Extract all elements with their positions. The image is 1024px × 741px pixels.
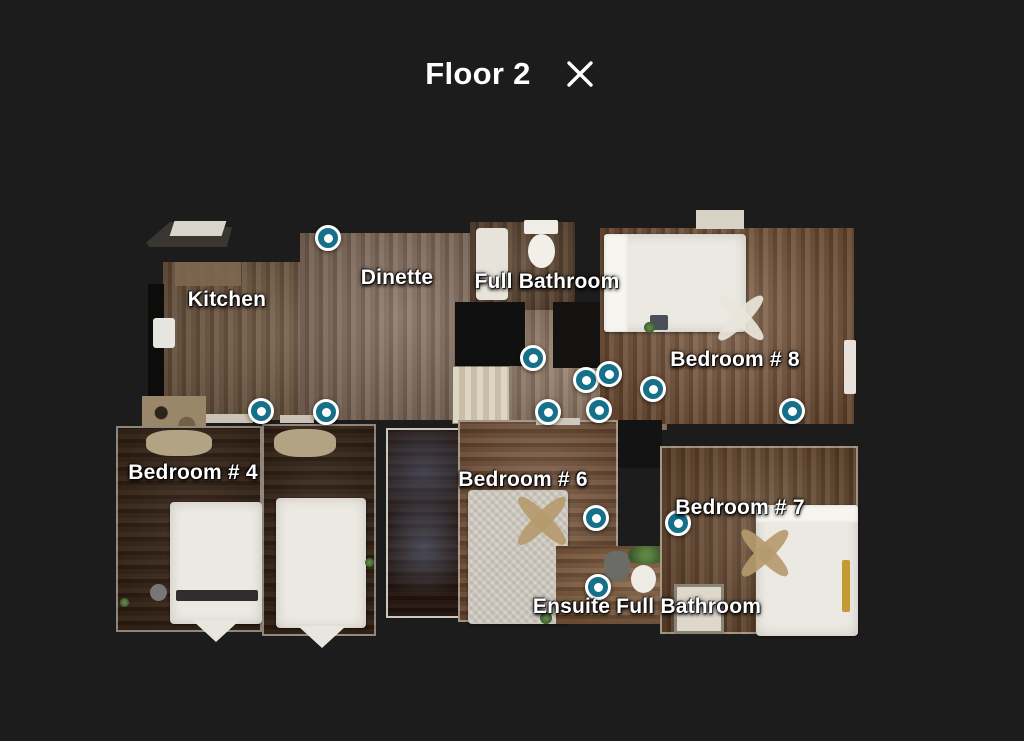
staircase — [452, 366, 510, 424]
bed-pillows — [604, 234, 628, 332]
blanket-drape — [298, 626, 346, 648]
floorplan-overlay: Floor 2 — [0, 0, 1024, 741]
room-bedroom-7 — [660, 446, 858, 634]
waypoint-marker-13[interactable] — [585, 574, 611, 600]
door-threshold — [205, 414, 253, 423]
waypoint-marker-9[interactable] — [586, 397, 612, 423]
plant — [540, 612, 552, 624]
waypoint-marker-8[interactable] — [535, 399, 561, 425]
close-button[interactable] — [561, 55, 599, 93]
bedding-clutter — [146, 430, 212, 456]
kitchen-floor-patch — [175, 262, 241, 286]
bathroom-vanity — [476, 228, 508, 300]
room-bedroom-4 — [116, 426, 262, 632]
waypoint-marker-3[interactable] — [313, 399, 339, 425]
waypoint-marker-2[interactable] — [248, 398, 274, 424]
closet-nook — [696, 210, 744, 229]
room-bedroom-5 — [262, 424, 376, 636]
waypoint-marker-4[interactable] — [520, 345, 546, 371]
hamper — [604, 551, 630, 581]
room-dark-hall — [386, 428, 462, 618]
waypoint-marker-1[interactable] — [315, 225, 341, 251]
stairwell-opening — [455, 302, 525, 366]
pouf — [150, 584, 167, 601]
ceiling-fan — [709, 286, 773, 350]
waypoint-marker-6[interactable] — [596, 361, 622, 387]
waypoint-marker-12[interactable] — [665, 510, 691, 536]
room-bedroom-8 — [600, 228, 854, 424]
kitchen-appliance — [153, 318, 175, 348]
blanket-drape — [192, 620, 240, 642]
closet — [674, 584, 724, 634]
ceiling-fan — [508, 487, 576, 555]
room-full-bathroom — [470, 222, 575, 312]
toilet-tank — [524, 220, 558, 234]
hall-closet — [553, 302, 601, 368]
door-threshold — [280, 415, 314, 423]
skylight — [170, 221, 227, 236]
pedestal-sink — [631, 565, 656, 593]
close-icon — [565, 59, 595, 89]
plant — [644, 322, 655, 333]
waypoint-marker-10[interactable] — [779, 398, 805, 424]
ceiling-fan — [732, 520, 798, 586]
plant — [365, 558, 374, 567]
bed — [276, 498, 366, 628]
bed — [170, 502, 262, 624]
bed-bench — [176, 590, 258, 601]
curtain — [842, 560, 850, 612]
floorplan-image[interactable]: KitchenDinetteFull BathroomBedroom # 8Be… — [0, 0, 1024, 741]
bedding-clutter — [274, 429, 336, 457]
toilet-bowl — [528, 234, 555, 268]
waypoint-marker-5[interactable] — [573, 367, 599, 393]
wall-gap — [618, 420, 662, 468]
window-sill — [844, 340, 856, 394]
waypoint-marker-11[interactable] — [583, 505, 609, 531]
floor-title: Floor 2 — [425, 56, 530, 92]
plant — [628, 546, 664, 564]
plant — [120, 598, 129, 607]
waypoint-marker-7[interactable] — [640, 376, 666, 402]
floorplan-header: Floor 2 — [0, 50, 1024, 98]
